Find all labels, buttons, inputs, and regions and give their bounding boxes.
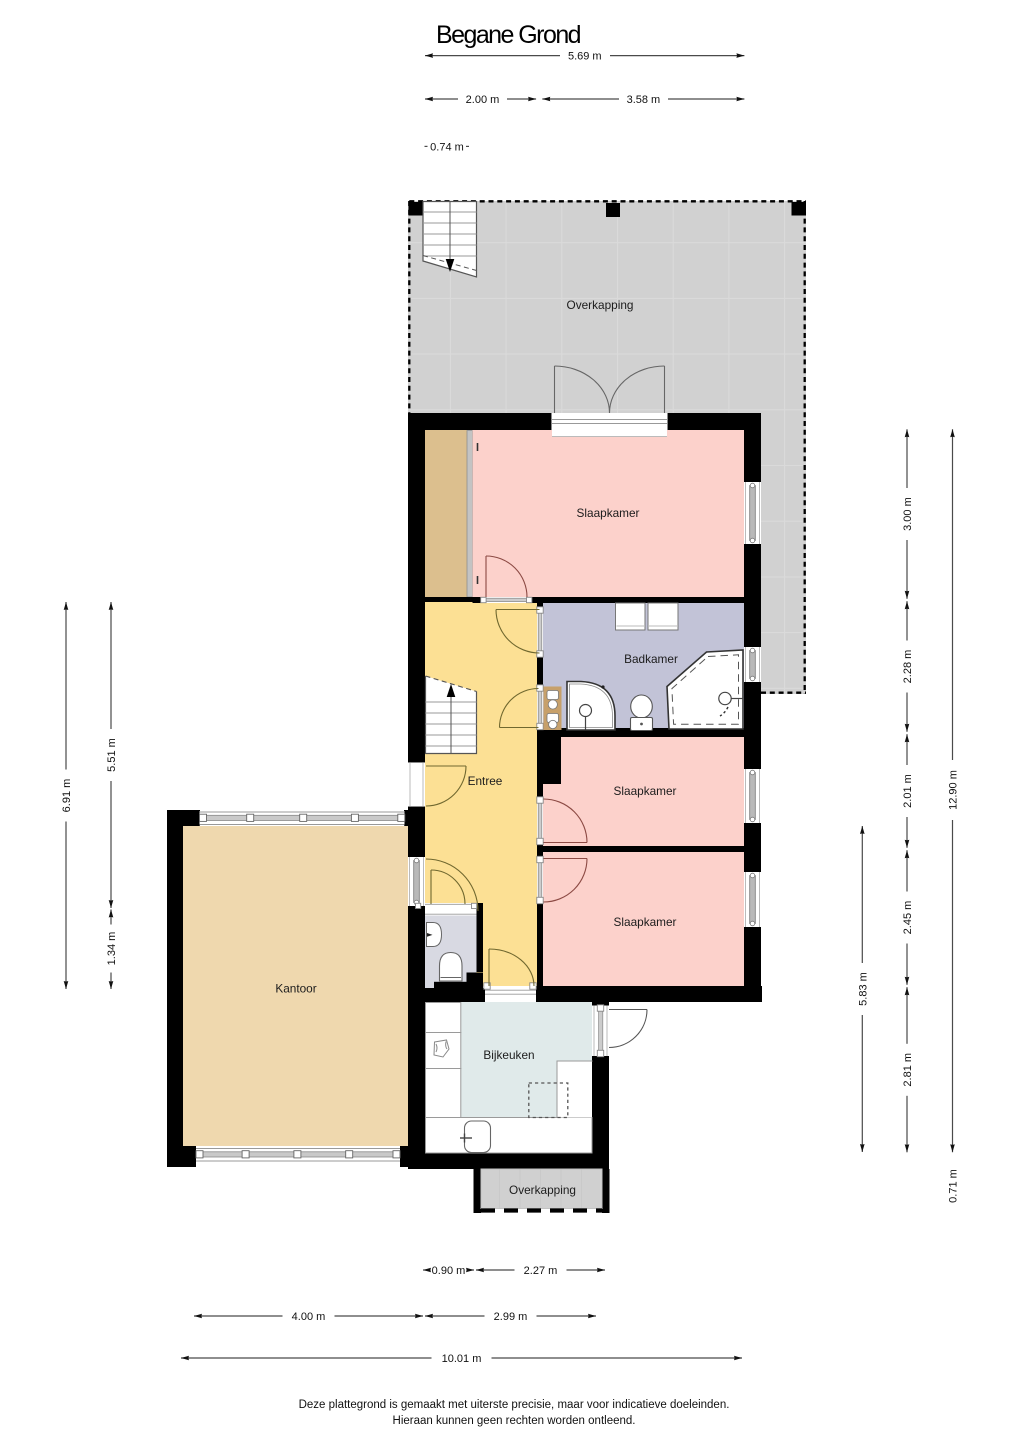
svg-text:3.58 m: 3.58 m (627, 94, 661, 106)
svg-text:5.51 m: 5.51 m (106, 738, 118, 772)
svg-text:Entree: Entree (468, 774, 503, 788)
svg-text:2.00 m: 2.00 m (466, 94, 500, 106)
svg-text:10.01 m: 10.01 m (442, 1353, 482, 1365)
svg-text:Kantoor: Kantoor (275, 982, 316, 996)
svg-text:0.74 m: 0.74 m (430, 141, 464, 153)
svg-text:5.83 m: 5.83 m (857, 972, 869, 1006)
svg-text:12.90 m: 12.90 m (948, 770, 960, 810)
svg-text:2.28 m: 2.28 m (902, 650, 914, 684)
svg-text:2.27 m: 2.27 m (524, 1265, 558, 1277)
svg-text:3.00 m: 3.00 m (902, 497, 914, 531)
svg-text:5.69 m: 5.69 m (568, 51, 602, 63)
svg-text:Overkapping: Overkapping (567, 298, 634, 312)
svg-text:Hieraan kunnen geen rechten wo: Hieraan kunnen geen rechten worden ontle… (393, 1415, 636, 1427)
svg-text:Slaapkamer: Slaapkamer (614, 915, 677, 929)
svg-text:Slaapkamer: Slaapkamer (577, 506, 640, 520)
svg-text:Overkapping: Overkapping (509, 1183, 576, 1197)
svg-text:2.45 m: 2.45 m (902, 901, 914, 935)
svg-text:2.01 m: 2.01 m (902, 774, 914, 808)
svg-text:Begane Grond: Begane Grond (436, 21, 581, 49)
svg-text:Deze plattegrond is gemaakt me: Deze plattegrond is gemaakt met uiterste… (299, 1399, 730, 1411)
svg-text:4.00 m: 4.00 m (292, 1311, 326, 1323)
svg-text:2.81 m: 2.81 m (902, 1053, 914, 1087)
svg-text:2.99 m: 2.99 m (494, 1311, 528, 1323)
svg-text:Badkamer: Badkamer (624, 652, 678, 666)
svg-text:0.71 m: 0.71 m (948, 1169, 960, 1203)
svg-text:Slaapkamer: Slaapkamer (614, 784, 677, 798)
svg-text:Bijkeuken: Bijkeuken (483, 1048, 534, 1062)
svg-text:6.91 m: 6.91 m (61, 779, 73, 813)
svg-text:1.34 m: 1.34 m (106, 932, 118, 966)
svg-text:0.90 m: 0.90 m (432, 1265, 466, 1277)
